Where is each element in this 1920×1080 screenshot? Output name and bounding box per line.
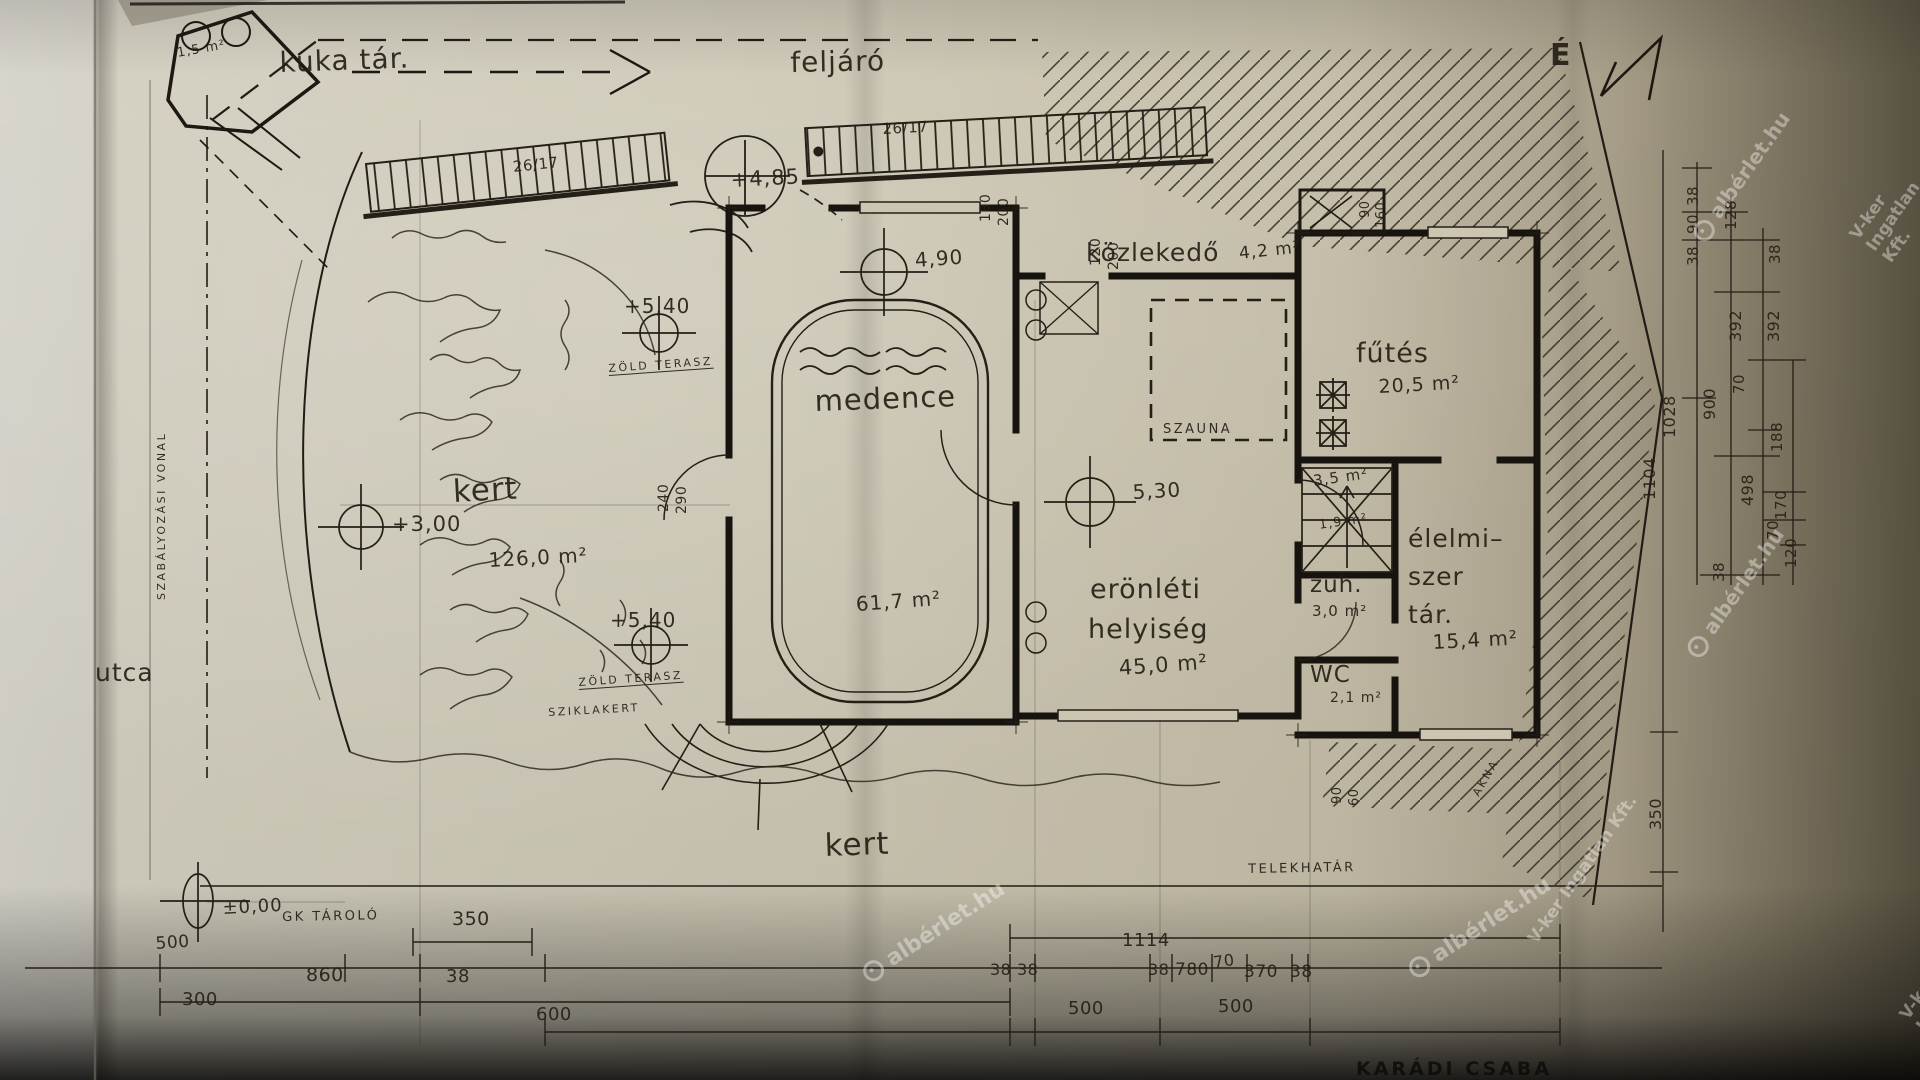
rdim-5: 392	[1726, 310, 1745, 342]
dim-780: 780	[1175, 960, 1209, 980]
garden-lower-label: kert	[824, 826, 890, 864]
rdim-6: 392	[1764, 310, 1783, 342]
rdim-15: 38	[1710, 562, 1728, 582]
dim-38b: 38	[1148, 960, 1169, 979]
room-label-shower: zuh.	[1310, 572, 1363, 598]
dim-38a: 38	[446, 966, 470, 987]
door-top-width: 90	[1358, 200, 1373, 218]
ramp-label: feljáró	[790, 44, 885, 79]
dim-350: 350	[452, 908, 490, 930]
dim-300: 300	[182, 989, 218, 1010]
pool-door-width: 240	[656, 484, 672, 512]
dim-500c: 500	[1218, 996, 1254, 1017]
rdim-12: 170	[1772, 490, 1790, 520]
rdim-10: 188	[1768, 422, 1786, 452]
rdim-9: 70	[1730, 374, 1748, 394]
door-bottom-height: 60	[1347, 788, 1362, 806]
room-area-wc: 2,1 m²	[1330, 690, 1382, 706]
room-label-sauna: SZAUNA	[1163, 422, 1232, 437]
dim-3838: 38 38	[990, 960, 1038, 979]
dim-600: 600	[536, 1004, 572, 1025]
rdim-350: 350	[1646, 798, 1665, 830]
room-area-shower: 3,0 m²	[1312, 602, 1367, 620]
garage-store-label: GK TÁROLÓ	[282, 908, 380, 925]
regulation-line-label: SZABÁLYOZÁSI VONAL	[155, 432, 168, 600]
rdim-2: 38	[1684, 246, 1702, 266]
pool-door-height: 290	[674, 486, 690, 514]
door-top-height: 160	[1374, 202, 1389, 228]
level-ground: ±0,00	[222, 895, 283, 919]
dim-38c: 38	[1290, 962, 1313, 982]
dim-70: 70	[1212, 950, 1236, 972]
level-fitness: 5,30	[1132, 477, 1182, 504]
room-label-wc: WC	[1310, 662, 1351, 688]
rdim-1104: 1104	[1640, 457, 1659, 500]
room-label-pantry-2: szer	[1408, 562, 1464, 591]
garden-upper-label: kert	[452, 471, 519, 510]
dim-860: 860	[306, 964, 344, 986]
level-corridor: 4,90	[914, 245, 964, 272]
level-entry: +4,85	[730, 164, 801, 192]
rdim-4: 38	[1766, 244, 1784, 264]
room-label-fitness-2: helyiség	[1088, 614, 1209, 645]
room-area-heating: 20,5 m²	[1378, 372, 1461, 398]
dim-500b: 500	[1068, 998, 1104, 1019]
room-label-pantry-1: élelmi–	[1408, 524, 1503, 553]
stair-ratio-right: 26/17	[882, 118, 929, 138]
floor-plan-scan: kuka tár. 1,5 m² feljáró 26/17 26/17 +4,…	[0, 0, 1920, 1080]
rdim-0: 38	[1684, 186, 1702, 206]
win1-height: 200	[996, 198, 1012, 226]
room-label-heating: fűtés	[1356, 338, 1429, 369]
room-label-pantry-3: tár.	[1408, 600, 1453, 629]
room-label-corridor: közlekedő	[1086, 238, 1219, 267]
street-label: utca	[95, 658, 154, 687]
room-area-pantry: 15,4 m²	[1432, 626, 1519, 654]
plot-boundary-label: TELEKHATÁR	[1248, 860, 1356, 877]
dim-1114: 1114	[1122, 930, 1170, 951]
rdim-7: 1028	[1660, 395, 1679, 438]
architect-signature: KARÁDI CSABA	[1356, 1058, 1552, 1080]
room-label-pool: medence	[814, 379, 957, 418]
level-garden: +3,00	[392, 512, 461, 536]
level-terrace-b: +5,40	[610, 608, 676, 632]
door-bottom-width: 90	[1330, 786, 1345, 804]
rdim-8: 900	[1700, 388, 1719, 420]
dim-500a: 500	[155, 932, 190, 954]
north-letter: É	[1550, 38, 1572, 73]
rdim-11: 498	[1738, 474, 1757, 506]
room-label-fitness-1: erönléti	[1090, 574, 1201, 605]
win1-width: 180	[978, 194, 994, 222]
level-terrace-a: +5,40	[624, 294, 690, 318]
trash-store-label: kuka tár.	[279, 41, 410, 79]
dim-370: 370	[1244, 962, 1278, 982]
